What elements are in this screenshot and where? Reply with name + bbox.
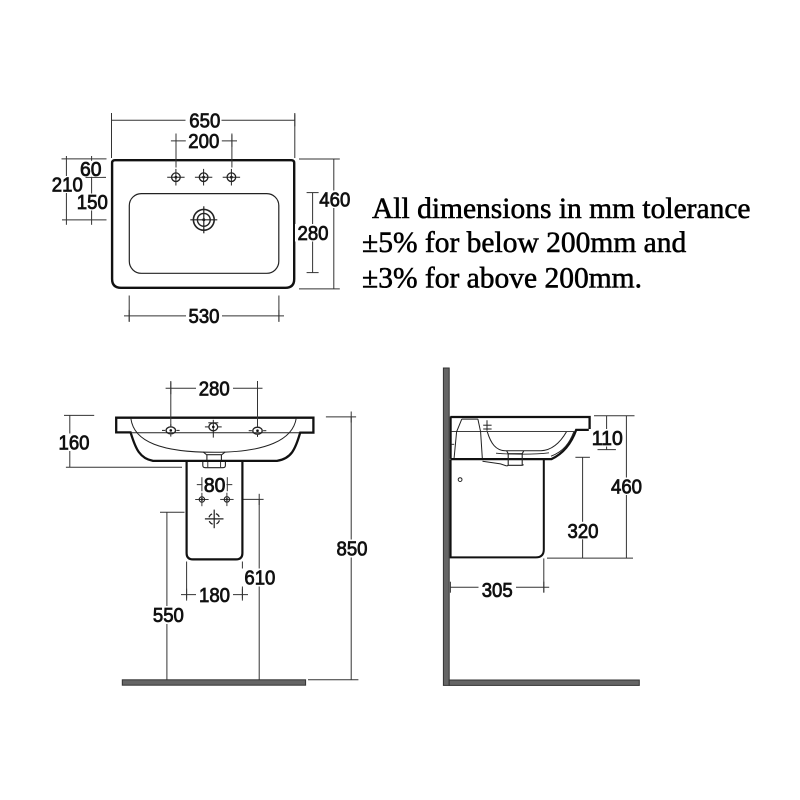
svg-text:280: 280 (298, 222, 329, 245)
svg-text:160: 160 (59, 432, 90, 455)
svg-text:610: 610 (244, 567, 275, 590)
svg-text:650: 650 (189, 110, 220, 133)
svg-text:460: 460 (319, 188, 350, 211)
svg-text:110: 110 (592, 427, 623, 450)
svg-text:All dimensions in mm tolerance: All dimensions in mm tolerance (372, 193, 751, 225)
svg-text:530: 530 (189, 305, 220, 328)
svg-text:550: 550 (153, 604, 184, 627)
svg-text:150: 150 (77, 191, 108, 214)
svg-text:80: 80 (204, 474, 226, 497)
svg-text:460: 460 (611, 476, 642, 499)
svg-text:280: 280 (199, 378, 230, 401)
svg-text:60: 60 (80, 158, 102, 181)
svg-text:320: 320 (568, 520, 599, 543)
svg-text:850: 850 (337, 538, 368, 561)
svg-text:±5% for below 200mm and: ±5% for below 200mm and (362, 227, 686, 259)
svg-text:305: 305 (482, 579, 513, 602)
svg-text:180: 180 (199, 584, 230, 607)
svg-text:±3% for above 200mm.: ±3% for above 200mm. (362, 263, 642, 295)
svg-text:200: 200 (188, 130, 219, 153)
